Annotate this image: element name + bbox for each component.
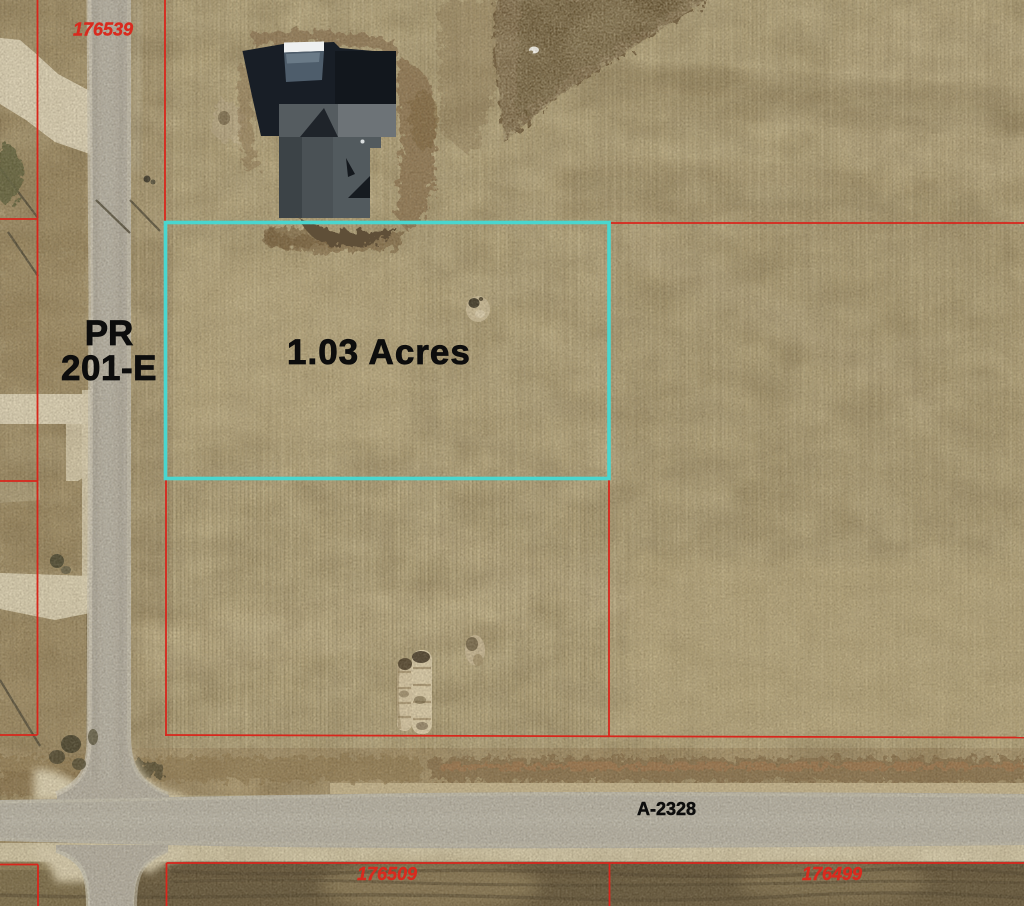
svg-text:176499: 176499 (802, 864, 862, 884)
svg-text:176539: 176539 (73, 20, 133, 40)
svg-text:A-2328: A-2328 (637, 799, 696, 819)
svg-text:PR: PR (85, 314, 134, 353)
svg-text:1.03 Acres: 1.03 Acres (287, 333, 471, 372)
svg-text:176509: 176509 (357, 864, 417, 884)
svg-text:201-E: 201-E (61, 349, 157, 388)
